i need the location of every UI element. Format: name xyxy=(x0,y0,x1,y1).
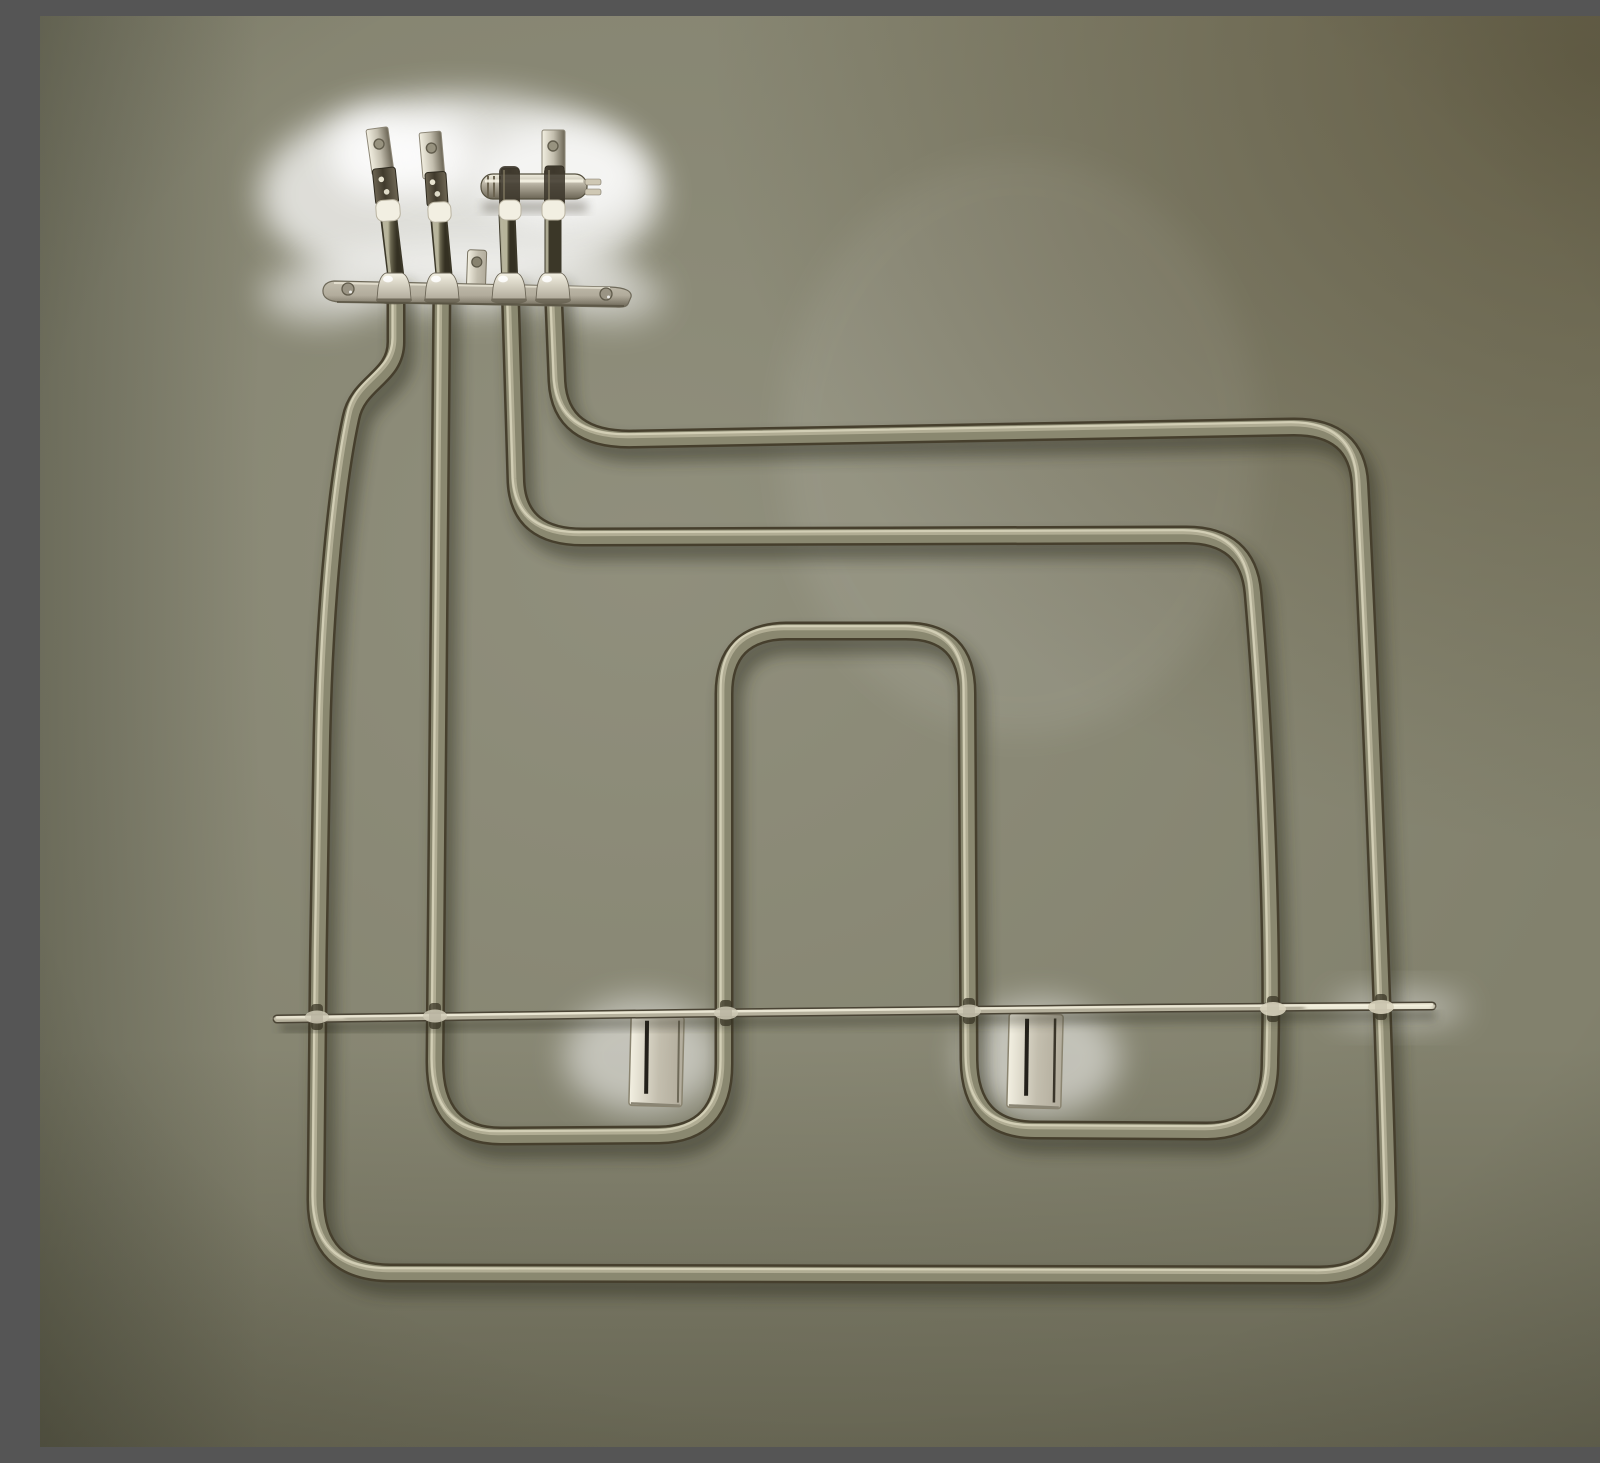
element-svg xyxy=(40,16,1600,1447)
oven-grill-element-photo xyxy=(40,16,1600,1447)
vignette-overlay xyxy=(40,16,1600,1447)
